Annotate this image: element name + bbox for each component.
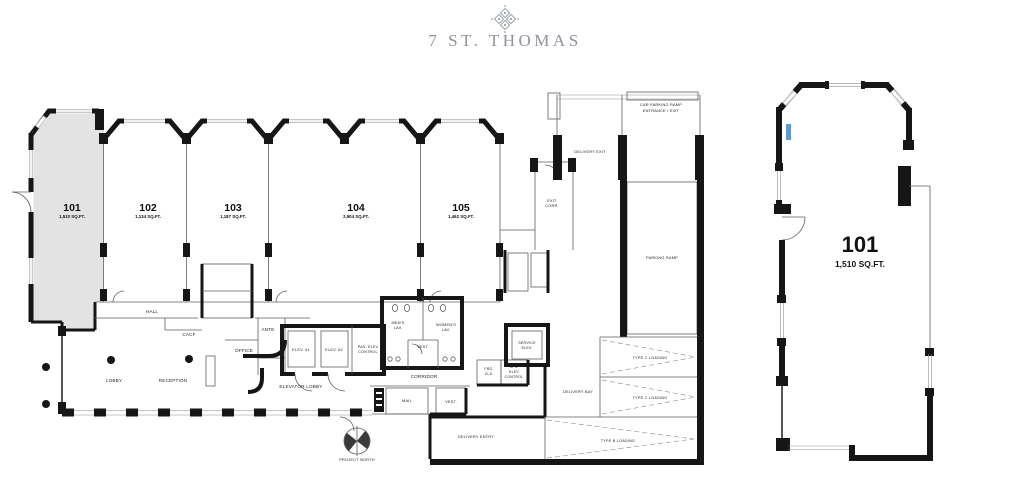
hall-label: HALL [146, 309, 159, 314]
detail-unit-number: 101 [842, 232, 879, 257]
unit-labels: 101 1,510 SQ.FT. 102 1,134 SQ.FT. 103 1,… [59, 202, 474, 219]
delivery-bay-label: DELIVERY BAY [563, 389, 593, 394]
pas-elev-control-label-2: CONTROL [358, 350, 377, 354]
mens-lav-label-2: LAV. [394, 325, 403, 330]
type-b-loading-label: TYPE B LOADING [601, 439, 635, 443]
detail-unit-area: 1,510 SQ.FT. [835, 259, 885, 269]
unit-101-area: 1,510 SQ.FT. [59, 214, 85, 219]
unit-101-highlight [33, 112, 104, 330]
elev2-label: ELEV. #2 [325, 347, 343, 352]
service-elev-label-2: ELEV. [521, 346, 532, 350]
unit-103-area: 1,187 SQ.FT. [220, 214, 246, 219]
parking-ramp-label: PARKING RAMP [646, 255, 678, 260]
pas-elev-control-label-1: PAS. ELEV [358, 345, 379, 349]
brand-header: 7 ST. THOMAS [428, 5, 581, 50]
car-ramp-label-1: CAR PARKING RAMP [640, 102, 682, 107]
type-c-loading-label-2: TYPE C LOADING [633, 396, 668, 400]
brand-logo-icon [491, 5, 519, 33]
spk-elev-label-3: CONTROL [505, 375, 524, 379]
delivery-exit-label: DELIVERY EXIT [574, 149, 606, 154]
unit-103-number: 103 [224, 202, 242, 214]
womens-lav-label-2: LAV. [442, 327, 451, 332]
unit-104-area: 2,904 SQ.FT. [343, 214, 369, 219]
unit-102-area: 1,134 SQ.FT. [135, 214, 161, 219]
demising-walls [100, 144, 503, 302]
type-c-loading-label-1: TYPE C LOADING [633, 356, 668, 360]
service-elev-label-1: SERVICE [518, 341, 536, 345]
vest-lav-label: VEST. [417, 344, 429, 349]
frg-cls-label-2: CLS. [485, 372, 494, 376]
lavatories: MEN'S LAV. WOMEN'S LAV. VEST. [382, 298, 462, 368]
brand-title: 7 ST. THOMAS [428, 31, 581, 50]
main-stair [202, 264, 252, 318]
cacf-label: CACF [182, 332, 195, 337]
spk-elev-label-2: ELEV [509, 370, 519, 374]
unit-101-number: 101 [63, 202, 81, 214]
frg-cls-label-1: FRG. [484, 367, 493, 371]
unit-102-number: 102 [139, 202, 157, 214]
floorplan-canvas: 7 ST. THOMAS [0, 0, 1024, 482]
floorplan-page: 7 ST. THOMAS [0, 0, 1024, 482]
detail-plan-101: 101 1,510 SQ.FT. [774, 81, 934, 458]
vest-mail-label: VEST. [445, 399, 457, 404]
left-wall-accent-marker [786, 124, 791, 140]
ante-label: ANTE [261, 327, 274, 332]
office-label: OFFICE [235, 348, 253, 353]
exterior-bay-walls [31, 109, 504, 144]
exit-corr-label-2: CORR. [545, 203, 559, 208]
car-ramp-label-2: ENTRANCE / EXIT [643, 108, 680, 113]
mail-label: MAIL [402, 398, 413, 403]
main-floor-plan: 101 1,510 SQ.FT. 102 1,134 SQ.FT. 103 1,… [12, 92, 704, 465]
lobby-label: LOBBY [106, 378, 122, 383]
project-north-compass: PROJECT NORTH [339, 426, 375, 462]
unit-105-area: 1,462 SQ.FT. [448, 214, 474, 219]
elevator-core: ELEV. #1 ELEV. #2 PAS. ELEV CONTROL ELEV… [279, 326, 384, 391]
hall: HALL [95, 291, 500, 318]
exit-corridor: EXIT CORR. [500, 158, 576, 293]
unit-105-number: 105 [452, 202, 470, 214]
delivery-bay: DELIVERY BAY TYPE C LOADING TYPE C LOADI… [340, 337, 704, 465]
elev1-label: ELEV. #1 [292, 347, 310, 352]
elevator-lobby-label: ELEVATOR LOBBY [279, 384, 322, 389]
reception-label: RECEPTION [159, 378, 188, 383]
parking-ramp: PARKING RAMP [620, 180, 704, 337]
delivery-entry-label: DELIVERY ENTRY [458, 434, 494, 439]
corridor-label: CORRIDOR [411, 374, 438, 379]
unit-104-number: 104 [347, 202, 365, 214]
project-north-label: PROJECT NORTH [339, 457, 375, 462]
